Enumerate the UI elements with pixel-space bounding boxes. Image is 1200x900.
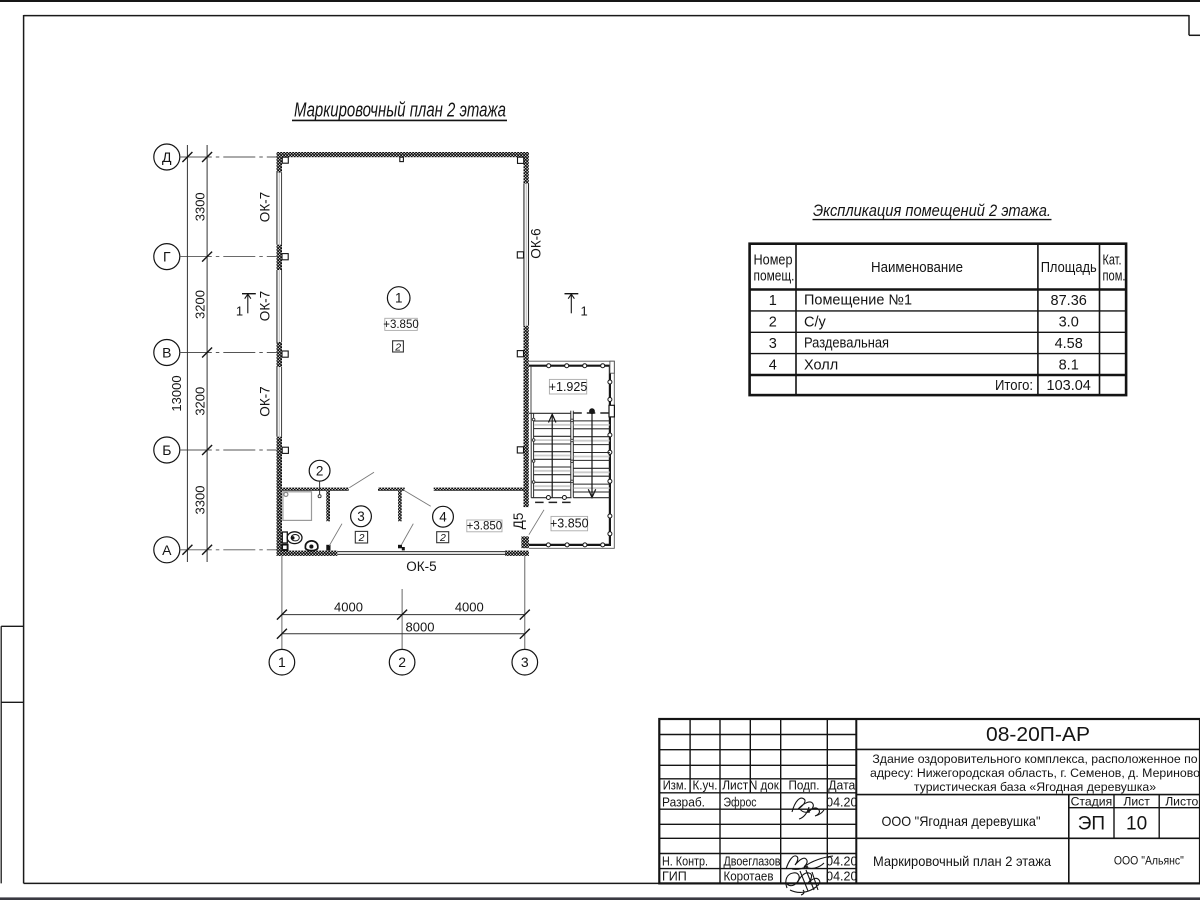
svg-text:ОК-7: ОК-7 bbox=[258, 192, 273, 222]
svg-text:08-20П-АР: 08-20П-АР bbox=[986, 723, 1090, 746]
svg-text:2: 2 bbox=[316, 463, 324, 478]
svg-text:Д: Д bbox=[162, 149, 172, 165]
svg-text:В: В bbox=[162, 345, 171, 361]
svg-text:Маркировочный план 2 этажа: Маркировочный план 2 этажа bbox=[873, 853, 1051, 869]
svg-text:Маркировочный план 2 этажа: Маркировочный план 2 этажа bbox=[294, 99, 506, 121]
svg-text:Номер: Номер bbox=[754, 253, 793, 269]
svg-text:ОК-7: ОК-7 bbox=[258, 386, 273, 416]
svg-text:8.1: 8.1 bbox=[1059, 357, 1079, 373]
svg-text:ОК-6: ОК-6 bbox=[529, 228, 544, 258]
svg-text:А: А bbox=[162, 542, 172, 558]
svg-text:помещ.: помещ. bbox=[754, 269, 795, 285]
svg-text:Б: Б bbox=[162, 442, 171, 458]
svg-text:Эфрос: Эфрос bbox=[724, 796, 757, 810]
svg-text:1: 1 bbox=[395, 291, 403, 306]
svg-text:Г: Г bbox=[163, 249, 171, 265]
svg-text:туристическая база «Ягодная де: туристическая база «Ягодная деревушка» bbox=[914, 780, 1156, 794]
svg-text:С/у: С/у bbox=[804, 315, 827, 331]
svg-text:13000: 13000 bbox=[169, 375, 184, 411]
svg-text:N док.: N док. bbox=[749, 779, 782, 793]
svg-text:2: 2 bbox=[398, 654, 406, 670]
svg-text:Здание оздоровительного компле: Здание оздоровительного комплекса, распо… bbox=[872, 752, 1197, 766]
svg-text:2: 2 bbox=[394, 341, 401, 353]
svg-text:Раздевальная: Раздевальная bbox=[804, 336, 889, 352]
svg-text:2: 2 bbox=[439, 532, 446, 544]
svg-text:ЭП: ЭП bbox=[1078, 814, 1105, 835]
svg-text:8000: 8000 bbox=[406, 620, 435, 635]
svg-text:Площадь: Площадь bbox=[1041, 260, 1097, 276]
svg-text:4000: 4000 bbox=[455, 600, 484, 615]
svg-text:ОК-7: ОК-7 bbox=[258, 291, 273, 321]
svg-text:Стадия: Стадия bbox=[1071, 794, 1113, 808]
svg-text:Д5: Д5 bbox=[511, 513, 526, 530]
svg-text:103.04: 103.04 bbox=[1047, 378, 1091, 394]
svg-text:+3.850: +3.850 bbox=[467, 521, 503, 533]
svg-text:Листов: Листов bbox=[1165, 794, 1200, 808]
svg-text:3.0: 3.0 bbox=[1059, 315, 1079, 331]
svg-text:1: 1 bbox=[769, 293, 777, 309]
svg-text:3200: 3200 bbox=[193, 290, 208, 319]
svg-text:ООО "Альянс": ООО "Альянс" bbox=[1114, 856, 1184, 868]
svg-text:ГИП: ГИП bbox=[662, 870, 687, 884]
svg-text:1: 1 bbox=[278, 654, 286, 670]
svg-text:+3.850: +3.850 bbox=[383, 319, 419, 331]
svg-text:87.36: 87.36 bbox=[1051, 293, 1087, 309]
svg-text:+1.925: +1.925 bbox=[549, 380, 588, 394]
svg-text:04.20: 04.20 bbox=[826, 796, 857, 810]
svg-text:04.20: 04.20 bbox=[826, 870, 857, 884]
svg-text:Подп.: Подп. bbox=[789, 779, 820, 793]
svg-text:3300: 3300 bbox=[193, 486, 208, 515]
svg-text:ООО "Ягодная деревушка": ООО "Ягодная деревушка" bbox=[882, 813, 1041, 829]
svg-text:Лист: Лист bbox=[722, 779, 748, 793]
svg-text:пом.: пом. bbox=[1103, 269, 1126, 285]
svg-text:4.58: 4.58 bbox=[1055, 336, 1083, 352]
svg-text:Наименование: Наименование bbox=[871, 260, 963, 276]
svg-text:Двоеглазов: Двоеглазов bbox=[724, 855, 781, 869]
svg-text:Экспликация помещений 2 этажа.: Экспликация помещений 2 этажа. bbox=[813, 201, 1051, 220]
svg-text:4: 4 bbox=[769, 357, 777, 373]
svg-text:Дата: Дата bbox=[828, 779, 855, 793]
svg-text:10: 10 bbox=[1126, 814, 1147, 835]
svg-text:3: 3 bbox=[521, 654, 529, 670]
svg-text:Лист: Лист bbox=[1123, 794, 1150, 808]
svg-text:3: 3 bbox=[769, 336, 777, 352]
svg-text:3300: 3300 bbox=[193, 192, 208, 221]
svg-text:Разраб.: Разраб. bbox=[662, 796, 705, 810]
svg-text:К.уч.: К.уч. bbox=[693, 779, 718, 793]
svg-text:Помещение №1: Помещение №1 bbox=[804, 293, 912, 309]
svg-text:адресу: Нижегородская область,: адресу: Нижегородская область, г. Семено… bbox=[870, 766, 1200, 780]
svg-text:2: 2 bbox=[358, 532, 365, 544]
svg-text:Кат.: Кат. bbox=[1103, 253, 1122, 269]
svg-text:ОК-5: ОК-5 bbox=[406, 559, 436, 574]
svg-text:3: 3 bbox=[357, 509, 365, 524]
svg-text:Коротаев: Коротаев bbox=[724, 870, 774, 884]
svg-text:3200: 3200 bbox=[193, 387, 208, 416]
svg-text:Итого:: Итого: bbox=[995, 378, 1033, 394]
svg-text:Холл: Холл bbox=[804, 357, 838, 373]
svg-text:+3.850: +3.850 bbox=[550, 517, 589, 531]
svg-text:4: 4 bbox=[439, 509, 447, 524]
svg-text:2: 2 bbox=[769, 315, 777, 331]
svg-text:4000: 4000 bbox=[334, 600, 363, 615]
svg-text:Изм.: Изм. bbox=[663, 779, 687, 793]
svg-text:1: 1 bbox=[581, 304, 588, 319]
svg-text:1: 1 bbox=[236, 304, 243, 319]
svg-text:Н. Контр.: Н. Контр. bbox=[662, 855, 708, 869]
